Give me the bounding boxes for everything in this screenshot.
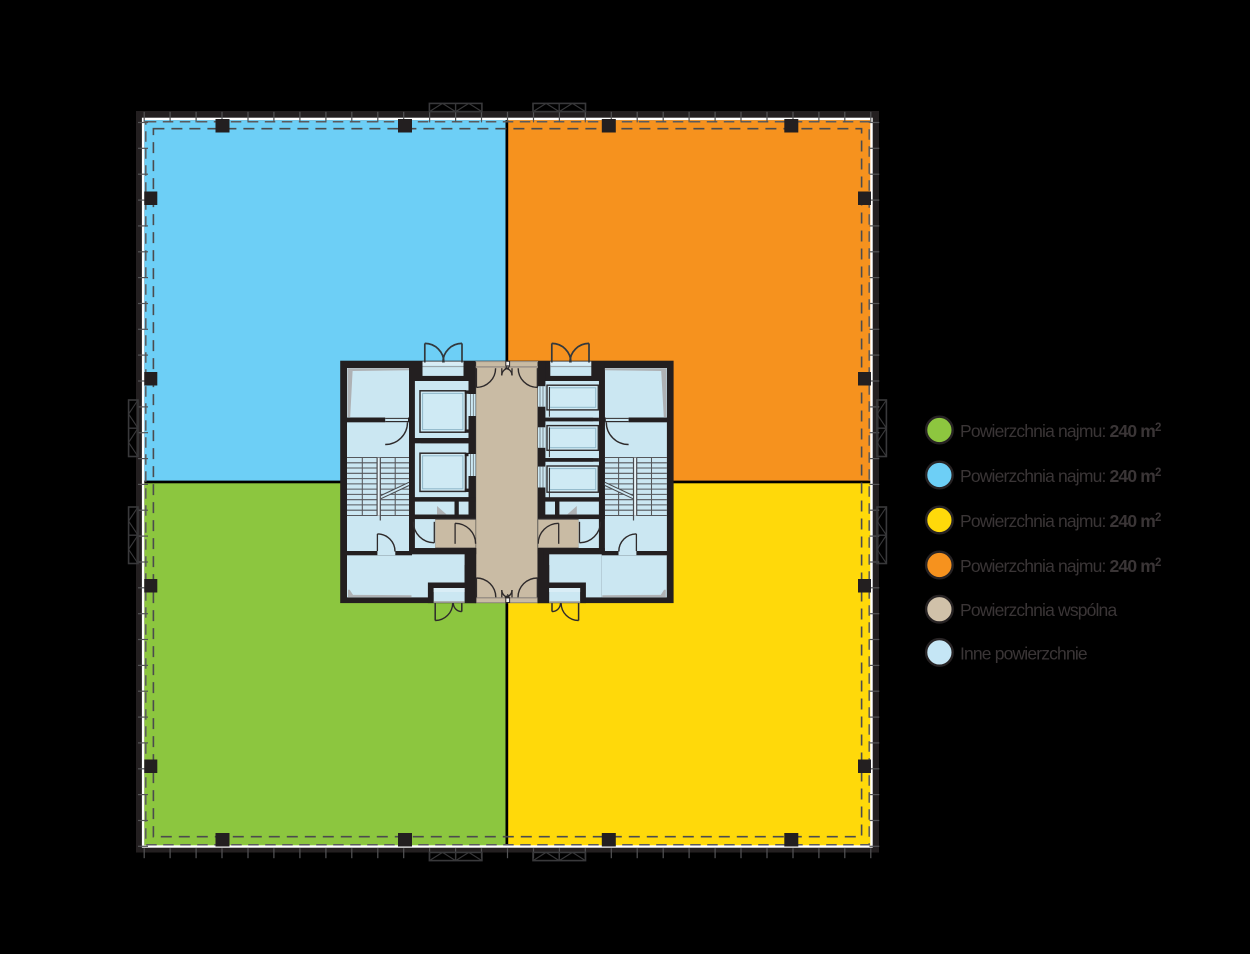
- svg-text:Powierzchnia wspólna: Powierzchnia wspólna: [960, 600, 1117, 620]
- svg-text:Powierzchnia najmu: 240 m2: Powierzchnia najmu: 240 m2: [960, 556, 1161, 576]
- svg-text:Powierzchnia najmu: 240 m2: Powierzchnia najmu: 240 m2: [960, 466, 1161, 486]
- svg-text:Powierzchnia najmu: 240 m2: Powierzchnia najmu: 240 m2: [960, 421, 1161, 441]
- svg-text:Powierzchnia najmu: 240 m2: Powierzchnia najmu: 240 m2: [960, 511, 1161, 531]
- svg-text:Inne powierzchnie: Inne powierzchnie: [960, 643, 1087, 663]
